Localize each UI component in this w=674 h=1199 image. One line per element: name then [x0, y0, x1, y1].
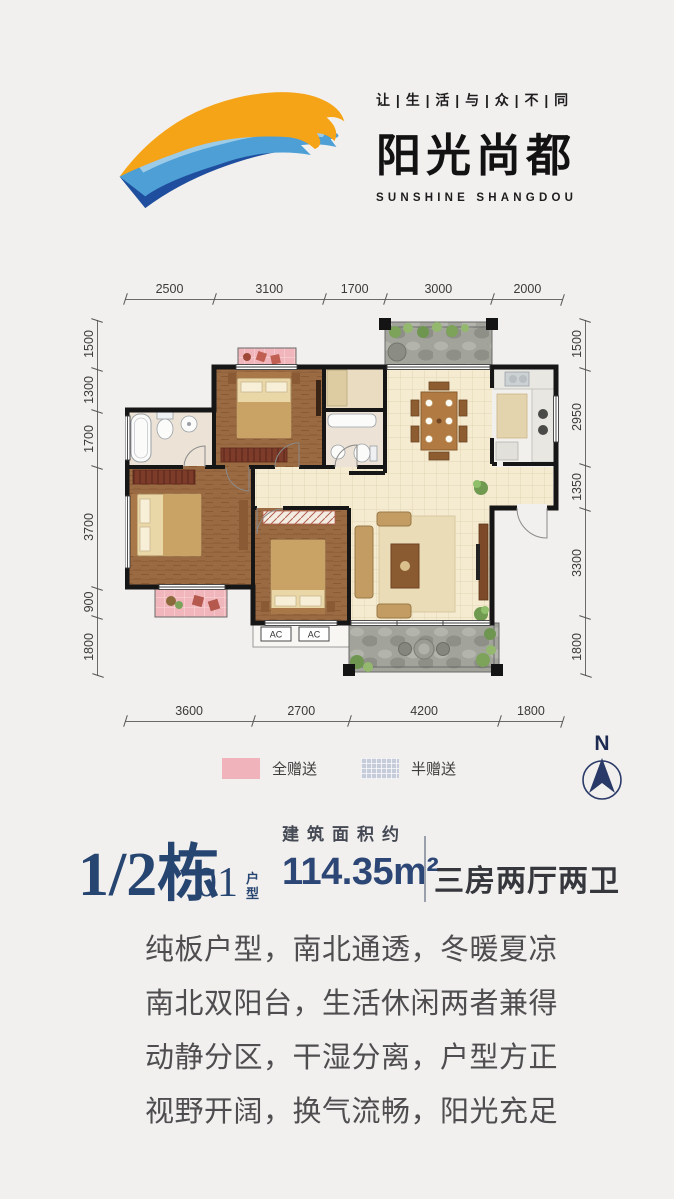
legend-swatch-full-gift: [222, 758, 260, 779]
dimension-segment: 3700: [80, 467, 98, 588]
brand-name: 阳光尚都: [376, 119, 576, 184]
dimension-segment: 2000: [492, 278, 563, 300]
selling-point-line: 南北双阳台，生活休闲两者兼得: [145, 984, 595, 1038]
dimension-left: 1500 1300 1700 3700 900 1800: [80, 320, 98, 676]
brand-name-en: SUNSHINE SHANGDOU: [376, 192, 576, 204]
dimension-segment: 1350: [568, 465, 586, 509]
selling-point-line: 视野开阔，换气流畅，阳光充足: [145, 1092, 595, 1146]
dimension-segment: 4200: [349, 700, 499, 722]
dimension-segment: 1500: [568, 320, 586, 369]
legend-label: 全赠送: [272, 758, 317, 779]
ac-label: AC: [270, 630, 283, 640]
compass: N: [579, 731, 625, 807]
brand-tagline: 让 | 生 | 活 | 与 | 众 | 不 | 同: [376, 90, 576, 110]
dimension-segment: 3600: [125, 700, 253, 722]
legend-label: 半赠送: [411, 758, 456, 779]
dimension-segment: 1800: [568, 617, 586, 676]
layout-summary: 三房两厅两卫: [434, 856, 620, 900]
selling-point-line: 纯板户型，南北通透，冬暖夏凉: [145, 930, 595, 984]
brand-logo-swoosh-icon: [106, 82, 356, 220]
compass-north-label: N: [594, 732, 609, 755]
dimension-segment: 1300: [80, 369, 98, 411]
legend-swatch-half-gift: [361, 758, 399, 779]
unit-info: 1/2栋 01 户型 建筑面积约 114.35m² 三房两厅两卫: [78, 816, 638, 908]
dimension-top: 2500 3100 1700 3000 2000: [125, 278, 563, 300]
info-divider: [424, 836, 426, 902]
dimension-segment: 2500: [125, 278, 214, 300]
dimension-segment: 3100: [214, 278, 324, 300]
brand-text-block: 让 | 生 | 活 | 与 | 众 | 不 | 同 阳光尚都 SUNSHINE …: [376, 90, 576, 204]
selling-points: 纯板户型，南北通透，冬暖夏凉 南北双阳台，生活休闲两者兼得 动静分区，干湿分离，…: [145, 930, 595, 1146]
dimension-segment: 2700: [253, 700, 349, 722]
room-entry: [492, 467, 553, 508]
area-label: 建筑面积约: [282, 820, 439, 845]
floorplan-drawing: AC AC: [125, 318, 563, 676]
poster: 让 | 生 | 活 | 与 | 众 | 不 | 同 阳光尚都 SUNSHINE …: [0, 0, 674, 1199]
dimension-segment: 1800: [80, 617, 98, 676]
dimension-segment: 2950: [568, 369, 586, 465]
ac-label: AC: [308, 630, 321, 640]
legend-item-full-gift: 全赠送: [222, 758, 317, 779]
selling-point-line: 动静分区，干湿分离，户型方正: [145, 1038, 595, 1092]
area-value: 114.35m²: [282, 851, 439, 894]
dimension-segment: 1700: [80, 411, 98, 467]
dimension-segment: 3000: [385, 278, 492, 300]
dimension-bottom: 3600 2700 4200 1800: [125, 700, 563, 722]
dimension-segment: 1700: [324, 278, 385, 300]
dimension-segment: 3300: [568, 509, 586, 617]
dimension-right: 1500 2950 1350 3300 1800: [568, 320, 586, 676]
area-group: 建筑面积约 114.35m²: [282, 820, 439, 894]
unit-suffix: 户型: [246, 872, 261, 902]
dimension-segment: 1800: [499, 700, 563, 722]
unit-number: 01: [196, 862, 238, 904]
legend-item-half-gift: 半赠送: [361, 758, 456, 779]
dimension-segment: 900: [80, 588, 98, 617]
dimension-segment: 1500: [80, 320, 98, 369]
legend: 全赠送 半赠送: [222, 758, 456, 779]
